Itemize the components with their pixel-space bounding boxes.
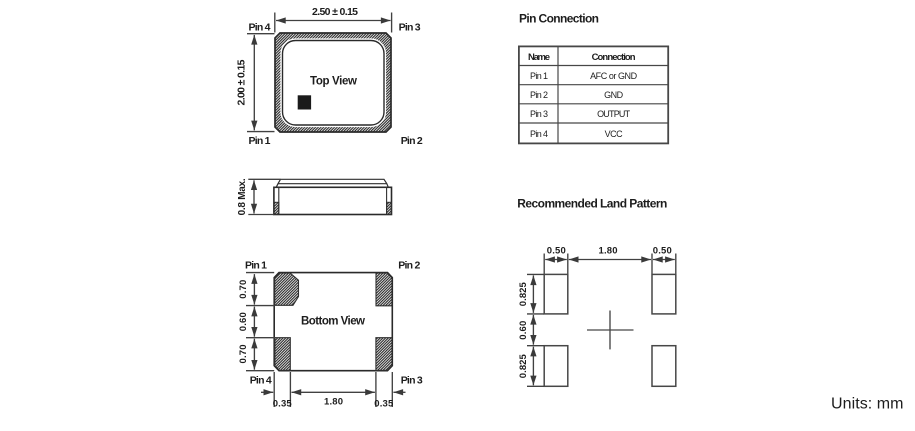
- svg-text:Pin 2: Pin 2: [530, 90, 548, 100]
- svg-text:Pin Connection: Pin Connection: [519, 11, 599, 25]
- svg-text:Pin 4: Pin 4: [530, 129, 548, 139]
- svg-text:0.825: 0.825: [518, 281, 529, 306]
- svg-text:0.50: 0.50: [653, 246, 672, 257]
- svg-text:2.00 ± 0.15: 2.00 ± 0.15: [236, 59, 248, 105]
- svg-text:Top View: Top View: [310, 75, 357, 87]
- svg-text:0.60: 0.60: [518, 321, 529, 340]
- svg-text:0.825: 0.825: [518, 353, 529, 378]
- svg-text:Pin 1: Pin 1: [249, 135, 271, 147]
- svg-text:Name: Name: [528, 52, 550, 63]
- svg-text:Pin 2: Pin 2: [401, 135, 423, 147]
- svg-text:Recommended Land Pattern: Recommended Land Pattern: [517, 197, 667, 211]
- svg-text:Pin 3: Pin 3: [401, 375, 423, 387]
- svg-text:0.70: 0.70: [238, 345, 249, 364]
- svg-text:Pin 1: Pin 1: [530, 71, 548, 81]
- svg-text:0.8 Max.: 0.8 Max.: [237, 178, 248, 215]
- svg-text:Connection: Connection: [592, 52, 636, 63]
- svg-text:1.80: 1.80: [324, 397, 343, 408]
- svg-text:1.80: 1.80: [599, 246, 618, 257]
- svg-text:Pin 3: Pin 3: [530, 109, 548, 119]
- svg-text:VCC: VCC: [605, 129, 624, 139]
- svg-text:Pin 1: Pin 1: [245, 259, 267, 271]
- svg-text:0.35: 0.35: [374, 399, 394, 410]
- svg-text:Pin 4: Pin 4: [249, 22, 271, 34]
- svg-text:2.50 ± 0.15: 2.50 ± 0.15: [312, 6, 358, 18]
- svg-text:Bottom View: Bottom View: [301, 315, 365, 327]
- svg-text:AFC or GND: AFC or GND: [590, 71, 638, 81]
- svg-text:Pin 2: Pin 2: [398, 259, 420, 271]
- svg-text:0.35: 0.35: [273, 399, 293, 410]
- svg-text:GND: GND: [604, 90, 624, 100]
- svg-text:OUTPUT: OUTPUT: [597, 109, 631, 119]
- svg-text:0.60: 0.60: [238, 312, 249, 331]
- svg-text:Units: mm: Units: mm: [831, 396, 904, 413]
- svg-text:0.50: 0.50: [547, 246, 566, 257]
- svg-text:Pin 4: Pin 4: [250, 375, 272, 387]
- svg-text:Pin 3: Pin 3: [399, 22, 421, 34]
- svg-text:0.70: 0.70: [238, 280, 249, 299]
